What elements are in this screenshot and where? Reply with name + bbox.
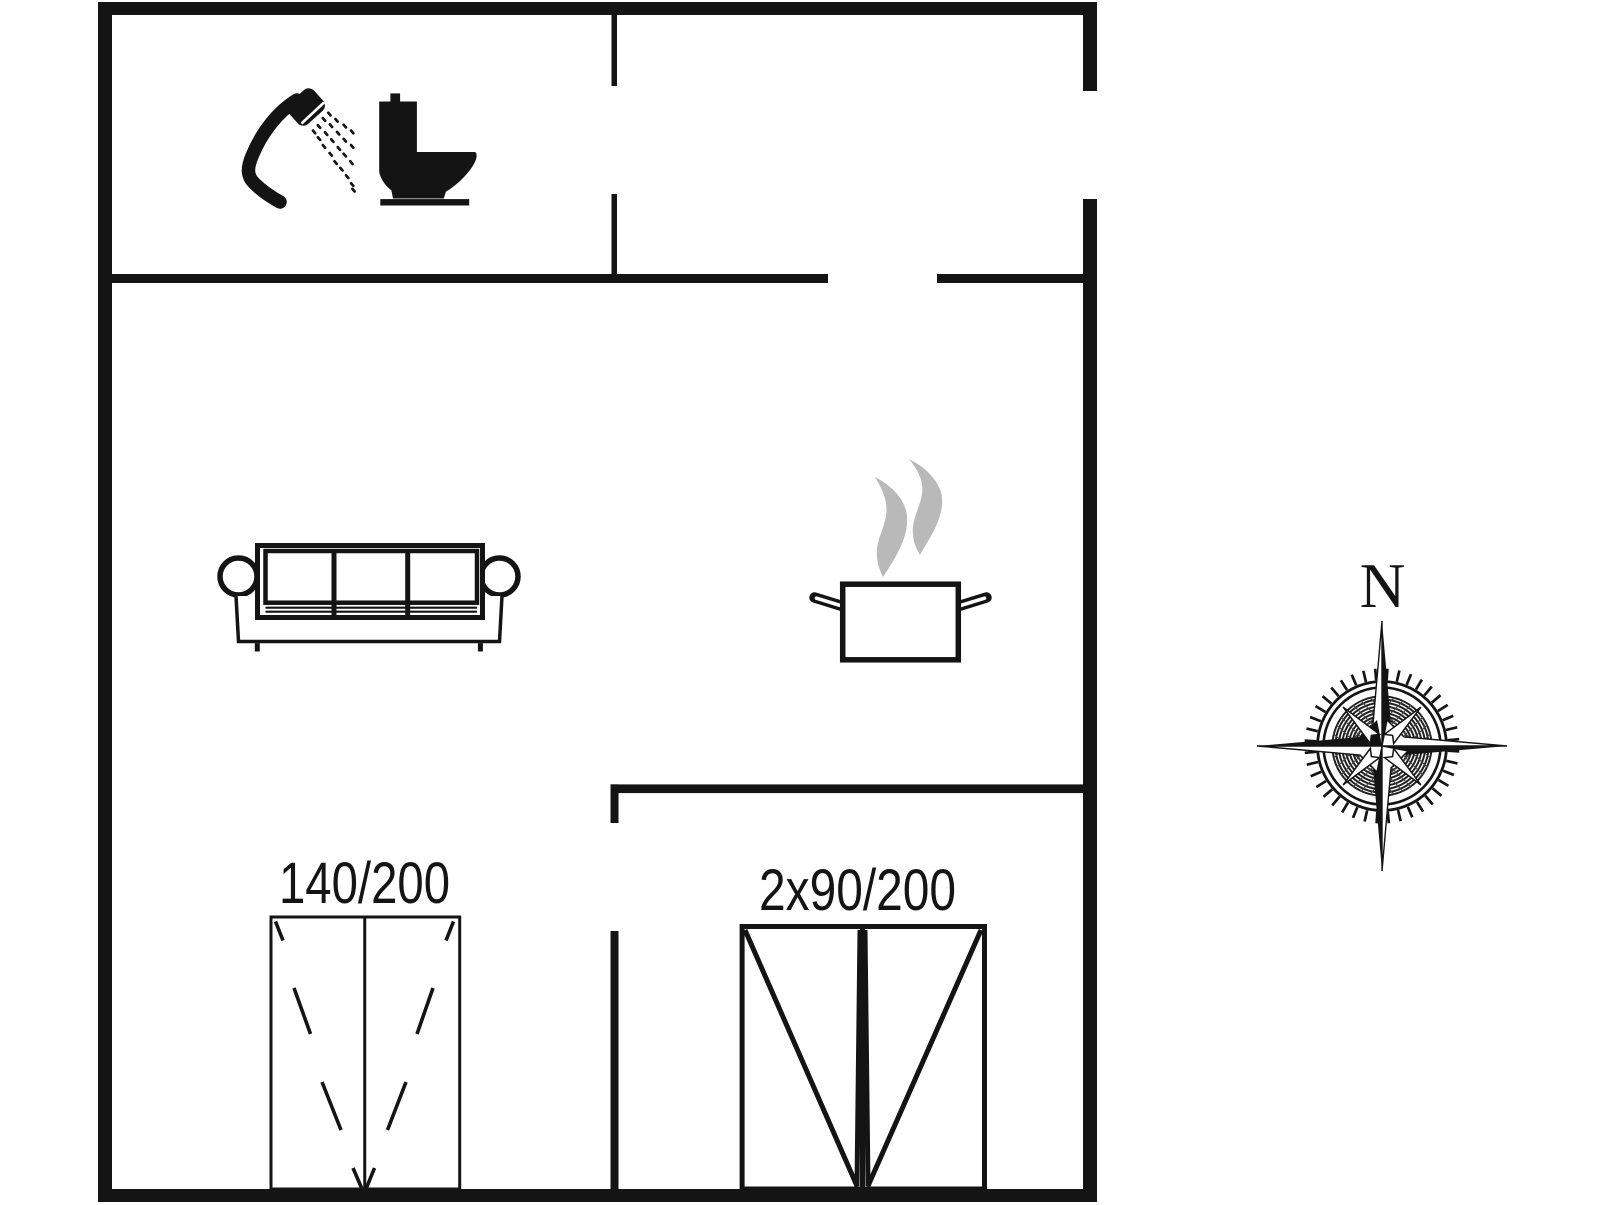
svg-text:N: N — [1360, 551, 1406, 621]
svg-text:140/200: 140/200 — [279, 851, 450, 916]
svg-text:2x90/200: 2x90/200 — [759, 858, 956, 923]
